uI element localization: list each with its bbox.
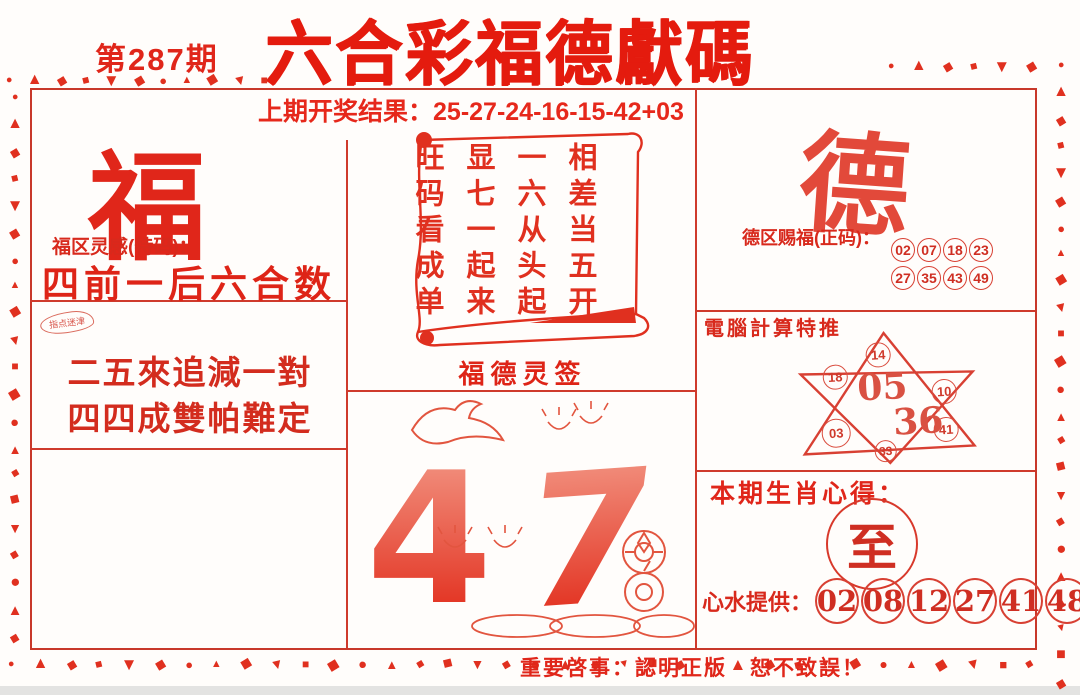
border-shape-icon: ◆ bbox=[154, 655, 169, 672]
page-title: 六合彩福德獻碼 bbox=[265, 0, 925, 99]
zheng-numbers-row2: 27354349 bbox=[890, 266, 994, 290]
border-shape-icon: ▲ bbox=[10, 280, 21, 291]
border-shape-icon: ◆ bbox=[1025, 57, 1040, 74]
tip-number: 41 bbox=[999, 578, 1043, 624]
border-shape-icon: ◆ bbox=[1054, 112, 1068, 128]
zheng-number: 27 bbox=[891, 266, 915, 290]
star-diagram: 14 18 10 05 36 03 41 33 bbox=[789, 325, 986, 473]
issue-number: 第287期 bbox=[95, 34, 219, 79]
border-shape-icon: ◆ bbox=[9, 630, 22, 645]
border-shape-icon: ◆ bbox=[501, 657, 513, 671]
border-shape-icon: ◆ bbox=[10, 468, 21, 481]
scroll-caption: 福德灵签 bbox=[348, 354, 697, 391]
border-shape-icon: ● bbox=[10, 254, 21, 269]
border-shape-icon: ◆ bbox=[1053, 270, 1069, 289]
border-shape-icon: ◆ bbox=[1054, 193, 1069, 210]
border-shape-icon: ◆ bbox=[7, 383, 24, 403]
border-shape-icon: ▼ bbox=[231, 72, 248, 89]
border-shape-icon: ▲ bbox=[33, 656, 49, 672]
border-shape-icon: ■ bbox=[8, 491, 21, 509]
border-shape-icon: ◆ bbox=[933, 654, 950, 674]
border-shape-icon: ◆ bbox=[9, 547, 21, 561]
border-shape-icon: ▲ bbox=[7, 116, 23, 132]
border-shape-icon: ◆ bbox=[1024, 658, 1035, 671]
divider-star-zodiac bbox=[697, 470, 1035, 472]
border-shape-icon: ▲ bbox=[211, 659, 222, 670]
border-shape-icon: ◆ bbox=[415, 658, 426, 671]
zheng-number: 07 bbox=[917, 238, 941, 262]
zodiac-circle: 至 bbox=[826, 498, 918, 590]
de-zheng-label: 德区赐福(正码)： bbox=[742, 224, 880, 250]
border-shape-icon: ● bbox=[1056, 221, 1067, 236]
last-draw-result: 上期开奖结果：25-27-24-16-15-42+03 bbox=[258, 92, 684, 128]
scan-shadow-strip bbox=[0, 686, 1080, 695]
border-shape-icon: ● bbox=[10, 91, 19, 103]
border-shape-icon: ● bbox=[357, 656, 369, 673]
border-shape-icon: ▲ bbox=[27, 72, 43, 88]
border-shape-icon: ■ bbox=[1054, 458, 1067, 476]
border-shape-icon: ◆ bbox=[8, 225, 23, 242]
divider-poem-empty bbox=[30, 448, 348, 450]
border-shape-icon: ● bbox=[184, 657, 195, 672]
zheng-number: 23 bbox=[969, 238, 993, 262]
border-shape-icon: ◆ bbox=[55, 72, 69, 88]
border-shape-icon: ▼ bbox=[269, 656, 286, 673]
divider-left-column bbox=[346, 140, 348, 648]
border-shape-icon: ◆ bbox=[1053, 351, 1070, 371]
border-shape-icon: ◆ bbox=[7, 303, 23, 322]
border-shape-icon: ◆ bbox=[325, 654, 342, 674]
left-border-ornament: ●▲◆■▼◆●▲◆▼■◆●▲◆■▼◆●▲◆ bbox=[2, 92, 28, 644]
numeral-seven: 7 bbox=[518, 429, 659, 644]
tip-number: 08 bbox=[861, 578, 905, 624]
tips-row: 心水提供： 02 08 12 27 41 48 bbox=[702, 578, 1080, 624]
border-shape-icon: ■ bbox=[1057, 327, 1064, 339]
border-shape-icon: ▼ bbox=[470, 657, 484, 671]
border-shape-icon: ■ bbox=[441, 655, 454, 673]
border-shape-icon: ▼ bbox=[7, 197, 24, 214]
border-shape-icon: ● bbox=[1054, 539, 1068, 558]
scroll-bottom-curl bbox=[420, 331, 434, 345]
border-shape-icon: ▼ bbox=[965, 655, 983, 673]
last-draw-result-label: 上期开奖结果： bbox=[258, 98, 433, 126]
zheng-number: 43 bbox=[943, 266, 967, 290]
numeral-four: 4 bbox=[366, 433, 493, 644]
border-shape-icon: ■ bbox=[969, 59, 979, 72]
scroll-verse-column-1: 相差当五开 bbox=[560, 142, 602, 332]
border-shape-icon: ■ bbox=[1056, 647, 1066, 663]
fu-hint-text: 四前一后六合数 bbox=[42, 254, 336, 308]
border-shape-icon: ● bbox=[1055, 381, 1067, 398]
zheng-number: 49 bbox=[969, 266, 993, 290]
poem-line-1: 二五來追減一對 bbox=[38, 346, 342, 394]
border-shape-icon: ● bbox=[7, 658, 16, 670]
border-shape-icon: ▼ bbox=[7, 332, 24, 349]
border-shape-icon: ▼ bbox=[1053, 164, 1070, 181]
tip-number: 48 bbox=[1045, 578, 1080, 624]
zheng-number: 18 bbox=[943, 238, 967, 262]
border-shape-icon: ▲ bbox=[385, 658, 398, 671]
border-shape-icon: ▲ bbox=[1055, 410, 1068, 423]
border-shape-icon: ◆ bbox=[1055, 514, 1067, 528]
border-shape-icon: ▲ bbox=[1053, 84, 1069, 100]
border-shape-icon: ▼ bbox=[993, 58, 1010, 75]
tips-label: 心水提供： bbox=[702, 585, 812, 617]
zodiac-character: 至 bbox=[847, 508, 897, 580]
poem-line-2: 四四成雙帕難定 bbox=[38, 392, 342, 440]
border-shape-icon: ▼ bbox=[1054, 488, 1068, 502]
flyer-page: ●▲◆■▼◆●▲◆▼■ ●▲◆■▼◆ ●▲◆■▼◆●▲◆▼■◆●▲◆■▼◆●▲◆… bbox=[0, 0, 1080, 695]
zheng-numbers-row1: 02071823 bbox=[890, 238, 994, 262]
scroll-verse-column-2: 一六从头起 bbox=[509, 142, 551, 332]
border-shape-icon: ▲ bbox=[1056, 248, 1067, 259]
border-shape-icon: ■ bbox=[11, 360, 18, 372]
border-shape-icon: ▼ bbox=[8, 521, 22, 535]
tip-number: 02 bbox=[815, 578, 859, 624]
scroll-verse-column-4: 旺码看成单 bbox=[407, 142, 449, 332]
border-shape-icon: ▲ bbox=[8, 603, 23, 618]
zheng-number: 35 bbox=[917, 266, 941, 290]
border-shape-icon: ● bbox=[1056, 59, 1065, 71]
tip-number: 27 bbox=[953, 578, 997, 624]
border-shape-icon: ■ bbox=[999, 658, 1007, 671]
border-shape-icon: ▲ bbox=[905, 658, 917, 670]
last-draw-result-numbers: 25-27-24-16-15-42+03 bbox=[433, 98, 684, 126]
border-shape-icon: ◆ bbox=[8, 144, 22, 160]
border-shape-icon: ● bbox=[8, 572, 22, 591]
border-shape-icon: ● bbox=[9, 414, 21, 431]
border-shape-icon: ▲ bbox=[9, 443, 22, 456]
border-shape-icon: ■ bbox=[94, 657, 104, 670]
scroll-verse: 相差当五开 一六从头起 显七一起来 旺码看成单 bbox=[398, 142, 611, 332]
border-shape-icon: ▼ bbox=[1053, 299, 1070, 316]
zheng-number: 02 bbox=[891, 238, 915, 262]
border-shape-icon: ◆ bbox=[1056, 435, 1067, 448]
border-shape-icon: ▼ bbox=[121, 656, 138, 673]
border-shape-icon: ● bbox=[877, 656, 889, 672]
tip-number: 12 bbox=[907, 578, 951, 624]
border-shape-icon: ■ bbox=[80, 73, 90, 86]
border-shape-icon: ◆ bbox=[65, 656, 79, 672]
border-shape-icon: ● bbox=[5, 74, 14, 86]
border-shape-icon: ◆ bbox=[941, 58, 955, 74]
lucky-number-illustration: 4 7 bbox=[352, 394, 695, 644]
footer-notice: 重要啓事：認明正版 恕不致誤！ bbox=[520, 652, 865, 682]
border-shape-icon: ■ bbox=[302, 658, 309, 670]
border-shape-icon: ■ bbox=[10, 171, 20, 184]
border-shape-icon: ◆ bbox=[238, 655, 254, 674]
scroll-verse-column-3: 显七一起来 bbox=[458, 142, 500, 332]
border-shape-icon: ■ bbox=[1056, 139, 1066, 152]
